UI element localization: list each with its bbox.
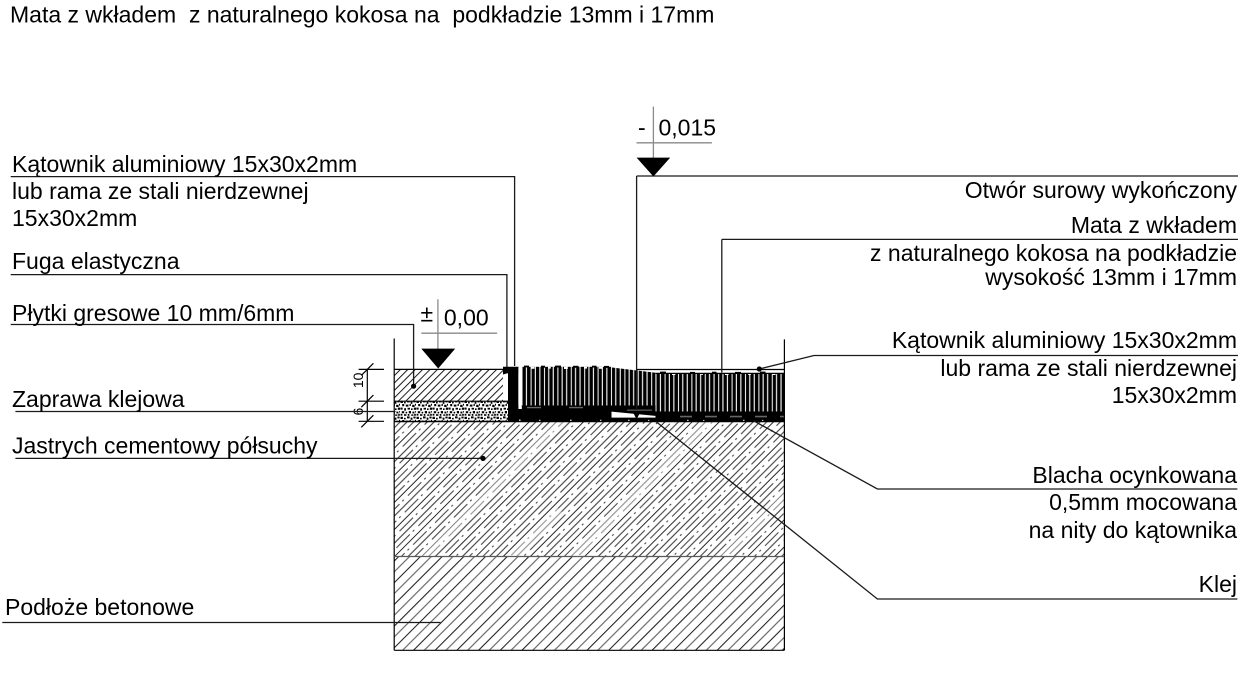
- svg-text:wysokość 13mm i 17mm: wysokość 13mm i 17mm: [984, 264, 1237, 290]
- svg-text:Klej: Klej: [1199, 571, 1237, 597]
- svg-text:15x30x2mm: 15x30x2mm: [12, 205, 137, 231]
- svg-text:Otwór surowy wykończony: Otwór surowy wykończony: [965, 177, 1238, 203]
- svg-text:Podłoże betonowe: Podłoże betonowe: [5, 594, 194, 620]
- svg-text:Kątownik aluminiowy 15x30x2mm: Kątownik aluminiowy 15x30x2mm: [12, 151, 357, 177]
- svg-text:0,00: 0,00: [444, 304, 489, 330]
- svg-text:0,015: 0,015: [659, 115, 717, 141]
- svg-text:±: ±: [421, 301, 434, 327]
- svg-text:na nity do kątownika: na nity do kątownika: [1029, 517, 1238, 543]
- svg-text:Blacha ocynkowana: Blacha ocynkowana: [1032, 462, 1237, 488]
- svg-text:lub rama ze stali nierdzewnej: lub rama ze stali nierdzewnej: [940, 355, 1237, 381]
- svg-text:10: 10: [350, 372, 366, 388]
- svg-text:Mata z wkładem: Mata z wkładem: [1071, 212, 1237, 238]
- svg-text:-: -: [638, 115, 646, 141]
- svg-text:lub rama ze stali nierdzewnej: lub rama ze stali nierdzewnej: [12, 178, 309, 204]
- svg-text:Jastrych cementowy półsuchy: Jastrych cementowy półsuchy: [12, 433, 318, 459]
- svg-text:0,5mm mocowana: 0,5mm mocowana: [1049, 489, 1237, 515]
- svg-text:Płytki gresowe 10 mm/6mm: Płytki gresowe 10 mm/6mm: [12, 300, 294, 326]
- svg-text:15x30x2mm: 15x30x2mm: [1112, 382, 1237, 408]
- svg-text:Kątownik aluminiowy 15x30x2mm: Kątownik aluminiowy 15x30x2mm: [892, 327, 1237, 353]
- svg-text:Fuga elastyczna: Fuga elastyczna: [12, 248, 180, 274]
- svg-text:Zaprawa klejowa: Zaprawa klejowa: [12, 386, 185, 412]
- svg-text:Mata z wkładem z naturalnego: Mata z wkładem z naturalnego kokosa na p…: [10, 2, 714, 28]
- svg-text:z naturalnego kokosa na podkła: z naturalnego kokosa na podkładzie: [870, 240, 1237, 266]
